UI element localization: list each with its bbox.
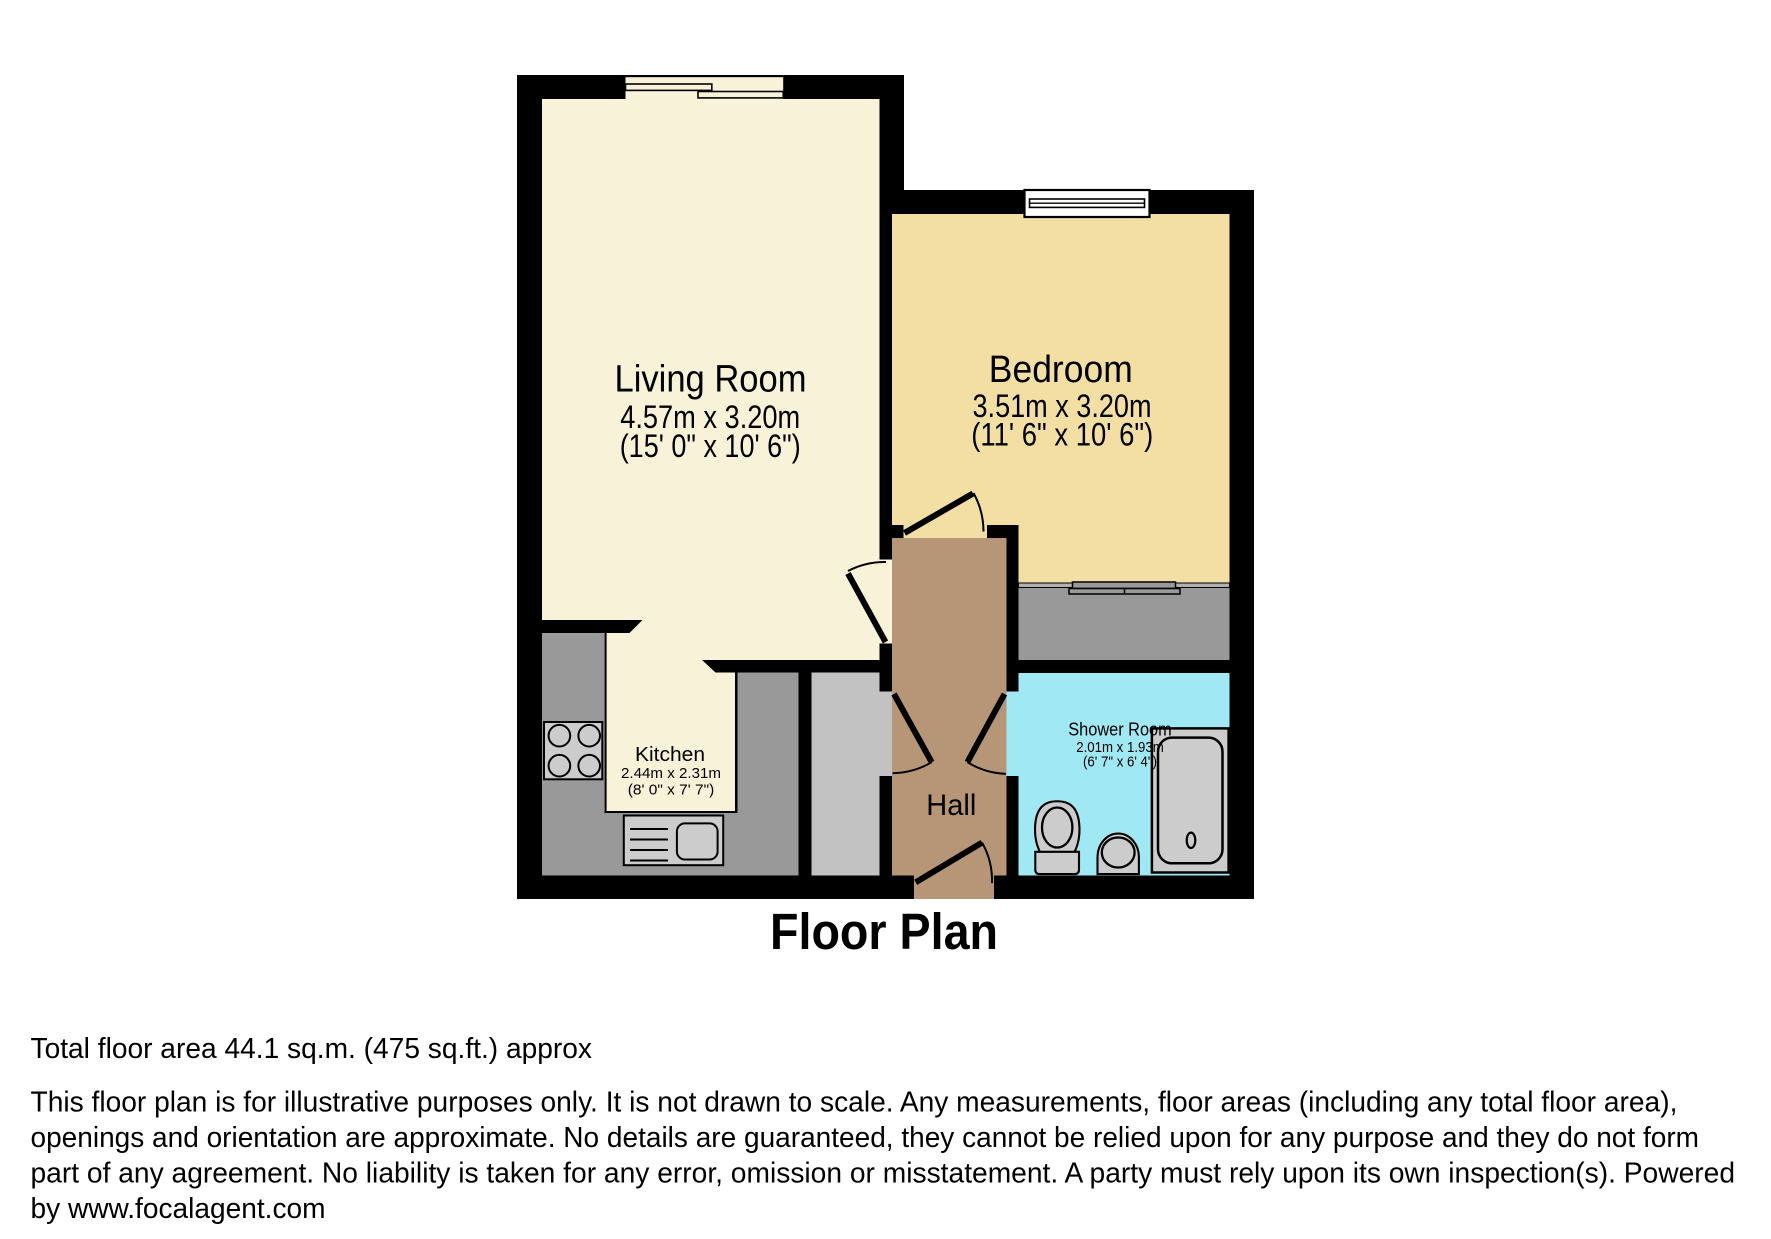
svg-text:This floor plan is for illustr: This floor plan is for illustrative purp…	[31, 1086, 1678, 1118]
svg-text:openings and orientation are a: openings and orientation are approximate…	[31, 1122, 1700, 1154]
svg-text:Hall: Hall	[926, 789, 976, 822]
svg-text:(11' 6" x 10' 6"): (11' 6" x 10' 6")	[971, 417, 1153, 453]
svg-text:Total floor area 44.1 sq.m. (4: Total floor area 44.1 sq.m. (475 sq.ft.)…	[31, 1033, 593, 1065]
svg-text:Kitchen: Kitchen	[635, 744, 705, 766]
svg-text:Bedroom: Bedroom	[989, 349, 1133, 391]
svg-text:by www.focalagent.com: by www.focalagent.com	[31, 1193, 326, 1225]
svg-text:2.44m x 2.31m: 2.44m x 2.31m	[621, 765, 721, 782]
svg-text:2.01m x 1.93m: 2.01m x 1.93m	[1076, 740, 1164, 756]
svg-text:(8' 0" x 7' 7"): (8' 0" x 7' 7")	[628, 782, 715, 799]
svg-text:part of any agreement. No liab: part of any agreement. No liability is t…	[31, 1158, 1736, 1190]
svg-text:Shower Room: Shower Room	[1068, 719, 1172, 739]
svg-text:(15' 0" x 10' 6"): (15' 0" x 10' 6")	[620, 428, 801, 464]
svg-text:Floor Plan: Floor Plan	[770, 903, 998, 960]
svg-text:Living Room: Living Room	[615, 359, 807, 401]
svg-text:(6' 7" x 6' 4"): (6' 7" x 6' 4")	[1083, 755, 1157, 771]
